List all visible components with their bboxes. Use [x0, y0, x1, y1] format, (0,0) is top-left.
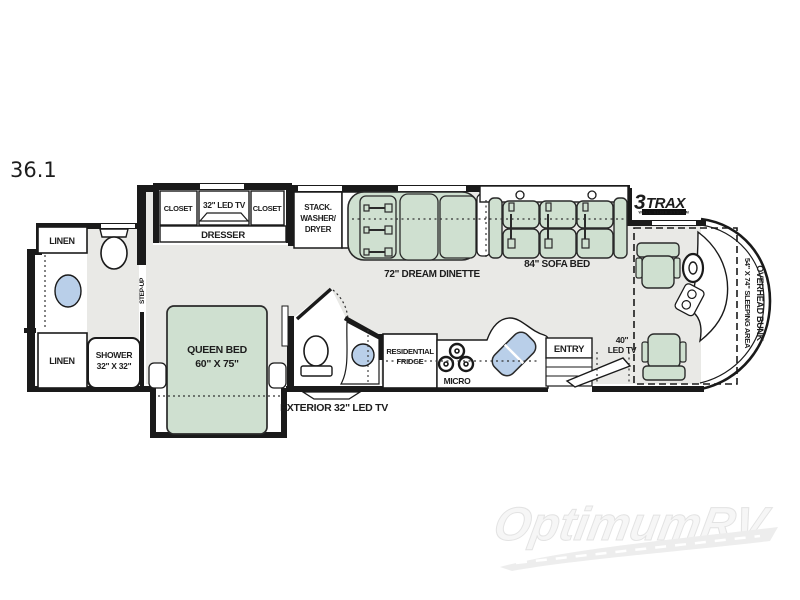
shower-label: SHOWER [96, 350, 133, 360]
driver-seat [636, 243, 680, 288]
floorplan-drawing: OptimumRV 36.1 OVERHEAD BUNK 54" X 74" S… [0, 0, 800, 600]
3trax-tagline: WALL SLIDE SYSTEM [638, 211, 689, 215]
dresser-label: DRESSER [201, 230, 245, 241]
linen-top-label: LINEN [49, 236, 75, 246]
dinette-bench-right [440, 196, 476, 258]
3trax-logo: 3 TRAX WALL SLIDE SYSTEM [634, 191, 690, 215]
end-table [477, 194, 490, 256]
sofa-label: 84" SOFA BED [524, 259, 590, 270]
exterior-tv-label: EXTERIOR 32" LED TV [280, 402, 388, 414]
dinette-label: 72" DREAM DINETTE [384, 269, 480, 280]
nightstand-right [269, 363, 286, 388]
passenger-seat [642, 334, 686, 380]
tv40-label-1: 40" [616, 335, 629, 345]
bedroom-tv-icon [200, 213, 248, 221]
sofa-bed [489, 198, 627, 258]
washer-label-2: WASHER/ [300, 214, 336, 223]
bathroom-sink [55, 275, 81, 307]
floorplan-page: OptimumRV 36.1 OVERHEAD BUNK 54" X 74" S… [0, 0, 800, 600]
washer-label-1: STACK. [304, 203, 331, 212]
bedroom-slide: CLOSET 32" LED TV CLOSET DRESSER [153, 183, 292, 245]
overhead-bunk-label: OVERHEAD BUNK [755, 265, 765, 341]
exterior-tv-icon [303, 392, 360, 399]
mid-bath-sink [352, 344, 374, 366]
step-up-label: STEP-UP [139, 277, 146, 304]
table-mount-1 [516, 191, 524, 199]
queen-bed-label: QUEEN BED [187, 344, 247, 356]
fridge-label-1: RESIDENTIAL [386, 347, 434, 356]
shower-size-label: 32" X 32" [97, 361, 132, 371]
queen-bed-slide: QUEEN BED 60" X 75" [149, 306, 287, 438]
entry-label: ENTRY [554, 344, 585, 355]
model-number: 36.1 [10, 158, 57, 182]
toilet [100, 229, 128, 269]
queen-bed [167, 306, 267, 434]
queen-bed-size-label: 60" X 75" [195, 358, 239, 370]
washer-label-3: DRYER [305, 225, 332, 234]
3trax-logo-icon: 3 TRAX WALL SLIDE SYSTEM [634, 191, 690, 215]
dinette-table [400, 194, 438, 260]
bedroom-tv-label: 32" LED TV [203, 200, 246, 210]
overhead-bunk-size-label: 54" X 74" SLEEPING AREA [743, 258, 752, 349]
nightstand-left [149, 363, 166, 388]
tv40-label-2: LED TV [608, 345, 637, 355]
watermark-logo: OptimumRV [490, 498, 778, 571]
pocket-door [282, 306, 288, 346]
closet-right-label: CLOSET [253, 204, 282, 213]
linen-bottom-label: LINEN [49, 356, 75, 366]
exterior-tv: EXTERIOR 32" LED TV [280, 392, 388, 414]
closet-left-label: CLOSET [164, 204, 193, 213]
micro-label: MICRO [444, 376, 472, 386]
steering-wheel [683, 254, 703, 282]
table-mount-2 [588, 191, 596, 199]
